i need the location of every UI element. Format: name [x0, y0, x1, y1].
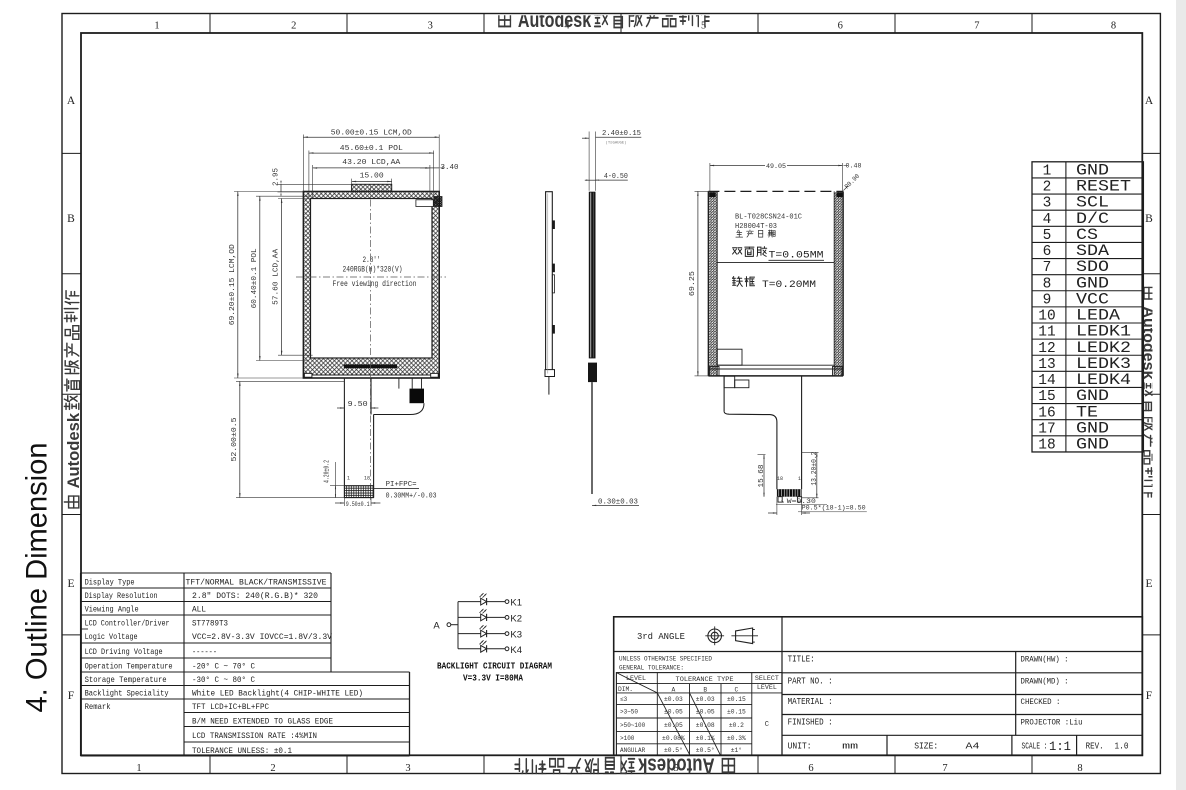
svg-text:(T≤GAUGE): (T≤GAUGE): [606, 140, 627, 145]
svg-text:B: B: [1145, 213, 1153, 225]
svg-text:240RGB(H)*320(V): 240RGB(H)*320(V): [343, 266, 403, 275]
svg-text:≤3: ≤3: [620, 696, 628, 703]
svg-text:0.48: 0.48: [846, 163, 862, 170]
svg-text:2.8" DOTS: 240(R.G.B)* 320: 2.8" DOTS: 240(R.G.B)* 320: [192, 591, 318, 601]
svg-text:2: 2: [270, 763, 275, 774]
svg-text:BL-T028CSN24-01C: BL-T028CSN24-01C: [735, 214, 802, 222]
svg-text:52.00±0.5: 52.00±0.5: [231, 417, 239, 462]
svg-text:SIZE:: SIZE:: [914, 742, 938, 752]
svg-text:F: F: [1146, 690, 1152, 702]
svg-text:±0.3%: ±0.3%: [727, 735, 746, 742]
svg-text:9.50±0.1: 9.50±0.1: [346, 501, 370, 508]
svg-text:Free viewing direction: Free viewing direction: [333, 280, 417, 289]
svg-text:57.60 LCD,AA: 57.60 LCD,AA: [273, 248, 281, 305]
svg-text:1: 1: [136, 763, 141, 774]
svg-text:T=0.20MM: T=0.20MM: [762, 279, 816, 291]
svg-text:60.40±0.1 POL: 60.40±0.1 POL: [251, 248, 259, 309]
svg-text:REV.: REV.: [1086, 742, 1104, 752]
svg-text:14: 14: [1038, 373, 1055, 389]
svg-text:>3~50: >3~50: [620, 709, 638, 716]
svg-text:1: 1: [154, 21, 159, 32]
svg-text:18: 18: [777, 476, 783, 482]
svg-text:B: B: [67, 213, 75, 225]
svg-text:4. Outline Dimension: 4. Outline Dimension: [21, 443, 54, 713]
svg-text:15.68: 15.68: [758, 465, 766, 488]
svg-text:49.05: 49.05: [766, 163, 786, 170]
svg-text:DIM.: DIM.: [618, 686, 633, 693]
svg-text:2.8'': 2.8'': [363, 256, 381, 265]
svg-text:43.20 LCD,AA: 43.20 LCD,AA: [342, 159, 401, 167]
svg-text:1: 1: [1043, 163, 1052, 179]
svg-text:12: 12: [1038, 341, 1055, 357]
svg-text:2.40±0.15: 2.40±0.15: [602, 130, 641, 138]
svg-text:PROJECTOR :Liu: PROJECTOR :Liu: [1021, 718, 1083, 728]
svg-text:ST7789T3: ST7789T3: [192, 619, 228, 629]
svg-text:7: 7: [974, 21, 979, 32]
svg-text:4.20±0.2: 4.20±0.2: [324, 460, 332, 483]
svg-text:A: A: [1145, 95, 1154, 107]
svg-text:TOLERANCE UNLESS: ±0.1: TOLERANCE UNLESS: ±0.1: [192, 746, 292, 756]
svg-text:SELECT: SELECT: [755, 675, 779, 682]
svg-text:17: 17: [1038, 421, 1055, 437]
svg-text:3: 3: [405, 763, 410, 774]
svg-text:E: E: [67, 578, 74, 590]
svg-text:SCALE :: SCALE :: [1022, 742, 1048, 752]
svg-text:1.0: 1.0: [1115, 742, 1129, 752]
svg-text:Viewing Angle: Viewing Angle: [85, 605, 139, 615]
svg-text:CHECKED :: CHECKED :: [1021, 697, 1061, 707]
svg-text:K4: K4: [510, 645, 522, 656]
svg-text:C: C: [765, 721, 769, 729]
svg-text:1: 1: [798, 476, 801, 482]
svg-text:P0.5*(18-1)=8.50: P0.5*(18-1)=8.50: [802, 505, 866, 512]
svg-text:Autodesk: Autodesk: [64, 412, 83, 488]
svg-text:13.20±0.2: 13.20±0.2: [811, 452, 819, 486]
svg-text:8: 8: [1043, 276, 1052, 292]
svg-text:2.95: 2.95: [273, 168, 281, 186]
svg-text:A: A: [67, 95, 76, 107]
svg-text:7: 7: [1043, 260, 1052, 276]
svg-text:B/M NEED EXTENDED TO GLASS EDG: B/M NEED EXTENDED TO GLASS EDGE: [192, 716, 333, 726]
svg-text:Backlight Speciality: Backlight Speciality: [85, 689, 169, 699]
svg-text:TITLE:: TITLE:: [788, 655, 815, 665]
svg-text:LCD TRANSMISSION RATE :4%MIN: LCD TRANSMISSION RATE :4%MIN: [192, 731, 317, 741]
svg-text:TFT/NORMAL BLACK/TRANSMISSIVE: TFT/NORMAL BLACK/TRANSMISSIVE: [186, 578, 327, 588]
svg-text:A: A: [672, 687, 676, 694]
svg-text:Display Type: Display Type: [85, 578, 135, 588]
svg-text:C: C: [735, 687, 739, 694]
svg-text:Storage Temperature: Storage Temperature: [85, 675, 167, 685]
svg-text:11: 11: [1038, 325, 1055, 341]
svg-text:8: 8: [1111, 21, 1116, 32]
svg-text:K1: K1: [510, 598, 522, 609]
svg-text:2: 2: [1043, 180, 1052, 196]
svg-text:±0.03: ±0.03: [696, 696, 715, 703]
svg-text:6: 6: [838, 21, 843, 32]
svg-text:0.30±0.03: 0.30±0.03: [598, 498, 638, 506]
svg-text:V=3.3V I=80MA: V=3.3V I=80MA: [463, 674, 524, 684]
svg-text:3: 3: [1043, 196, 1052, 212]
svg-text:TOLERANCE TYPE: TOLERANCE TYPE: [676, 676, 734, 683]
svg-text:15: 15: [1038, 389, 1055, 405]
svg-text:DRAWN(MD) :: DRAWN(MD) :: [1021, 677, 1069, 687]
svg-text:White LED Backlight(4 CHIP-WHI: White LED Backlight(4 CHIP-WHITE LED): [192, 689, 363, 699]
svg-text:7: 7: [942, 763, 947, 774]
svg-text:LEVEL: LEVEL: [757, 684, 777, 691]
svg-text:16: 16: [1038, 405, 1055, 421]
svg-text:LCD Driving Voltage: LCD Driving Voltage: [85, 647, 163, 657]
svg-text:DRAWN(HW) :: DRAWN(HW) :: [1021, 655, 1069, 665]
svg-text:6: 6: [1043, 244, 1052, 260]
svg-text:10: 10: [1038, 309, 1055, 325]
svg-text:Display Resolution: Display Resolution: [85, 591, 158, 601]
svg-text:GND: GND: [1076, 436, 1109, 454]
svg-text:Logic Voltage: Logic Voltage: [85, 632, 138, 642]
svg-text:3.40: 3.40: [441, 164, 459, 172]
svg-text:UNIT:: UNIT:: [788, 742, 812, 752]
svg-text:18: 18: [364, 476, 370, 482]
svg-text:>100: >100: [620, 735, 635, 742]
svg-text:6: 6: [808, 763, 813, 774]
svg-text:A4: A4: [966, 742, 980, 752]
svg-text:3: 3: [428, 21, 433, 32]
svg-text:UNLESS OTHERWISE SPECIFIED: UNLESS OTHERWISE SPECIFIED: [619, 656, 712, 663]
svg-text:±0.5°: ±0.5°: [696, 746, 715, 754]
svg-text:18: 18: [1038, 438, 1055, 454]
svg-text:FINISHED :: FINISHED :: [788, 718, 833, 728]
svg-text:K2: K2: [510, 613, 522, 624]
svg-text:mm: mm: [842, 742, 858, 752]
svg-text:PART NO. :: PART NO. :: [788, 677, 833, 687]
svg-text:5: 5: [1043, 228, 1052, 244]
svg-text:PI+FPC=: PI+FPC=: [386, 481, 417, 489]
svg-text:LEVEL: LEVEL: [626, 675, 646, 682]
svg-text:2: 2: [291, 21, 296, 32]
svg-text:Operation Temperature: Operation Temperature: [85, 662, 173, 672]
svg-text:±0.5°: ±0.5°: [664, 746, 683, 754]
svg-text:F: F: [68, 690, 74, 702]
svg-text:GENERAL TOLERANCE:: GENERAL TOLERANCE:: [619, 665, 684, 672]
svg-text:9: 9: [1043, 292, 1052, 308]
svg-text:8: 8: [1077, 763, 1082, 774]
svg-text:50.00±0.15 LCM,OD: 50.00±0.15 LCM,OD: [331, 129, 413, 137]
svg-text:>50~100: >50~100: [620, 722, 646, 729]
svg-text:4-0.50: 4-0.50: [604, 173, 628, 181]
svg-text:3rd ANGLE: 3rd ANGLE: [637, 631, 685, 642]
svg-text:±0.03: ±0.03: [664, 696, 683, 703]
svg-text:------: ------: [192, 647, 217, 657]
svg-text:69.20±0.15 LCM,OD: 69.20±0.15 LCM,OD: [229, 244, 237, 326]
svg-text:1:1: 1:1: [1049, 740, 1071, 754]
svg-text:15.00: 15.00: [360, 173, 385, 181]
svg-text:A: A: [433, 620, 440, 631]
svg-text:13: 13: [1038, 357, 1055, 373]
svg-text:B: B: [703, 687, 707, 694]
svg-text:TFT LCD+IC+BL+FPC: TFT LCD+IC+BL+FPC: [192, 702, 269, 712]
svg-text:MATERIAL :: MATERIAL :: [788, 697, 833, 707]
svg-text:±0.15: ±0.15: [727, 696, 746, 703]
svg-text:K3: K3: [510, 630, 522, 641]
svg-text:ALL: ALL: [192, 605, 206, 615]
svg-text:45.60±0.1 POL: 45.60±0.1 POL: [340, 145, 404, 153]
svg-text:-30° C ~ 80° C: -30° C ~ 80° C: [192, 675, 255, 685]
svg-text:LCD Controller/Driver: LCD Controller/Driver: [85, 619, 170, 629]
svg-text:9.50: 9.50: [348, 401, 368, 409]
svg-text:BACKLIGHT CIRCUIT DIAGRAM: BACKLIGHT CIRCUIT DIAGRAM: [437, 662, 552, 672]
svg-text:ANGULAR: ANGULAR: [620, 747, 646, 754]
svg-text:4: 4: [1043, 212, 1052, 228]
svg-text:±0.15: ±0.15: [727, 709, 746, 716]
svg-text:±0.2: ±0.2: [729, 722, 744, 729]
svg-text:1: 1: [347, 476, 350, 482]
svg-text:VCC=2.8V-3.3V IOVCC=1.8V/3.3V: VCC=2.8V-3.3V IOVCC=1.8V/3.3V: [192, 632, 333, 642]
svg-text:T=0.05MM: T=0.05MM: [769, 250, 824, 262]
svg-text:-20° C ~ 70° C: -20° C ~ 70° C: [192, 662, 255, 672]
svg-text:69.25: 69.25: [689, 271, 697, 297]
svg-text:Remark: Remark: [85, 702, 111, 712]
svg-text:±1°: ±1°: [731, 746, 742, 754]
svg-text:E: E: [1145, 578, 1152, 590]
svg-text:0.30MM+/-0.03: 0.30MM+/-0.03: [386, 492, 437, 500]
